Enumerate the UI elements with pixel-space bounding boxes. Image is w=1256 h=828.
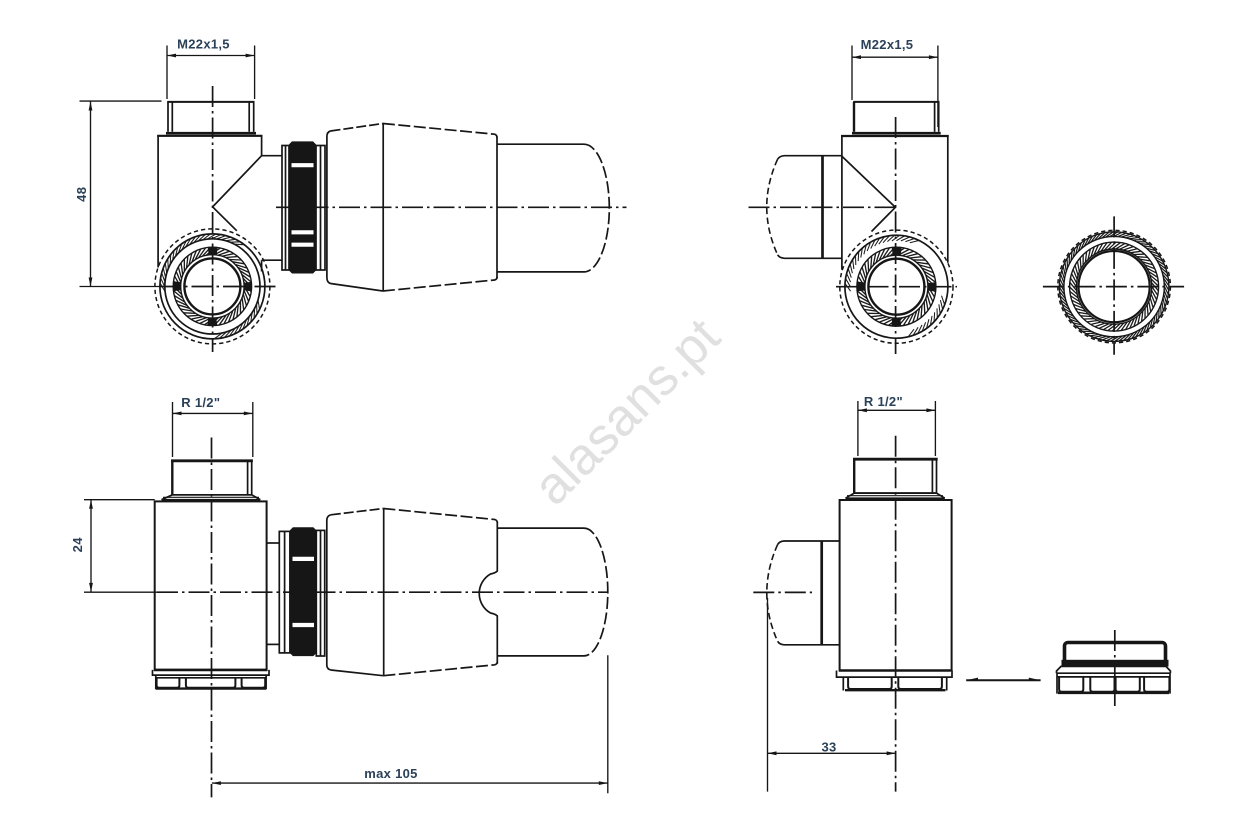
svg-text:max 105: max 105 <box>364 766 417 781</box>
svg-text:R 1/2": R 1/2" <box>181 395 220 410</box>
svg-text:R 1/2": R 1/2" <box>864 394 903 409</box>
svg-text:24: 24 <box>70 537 85 553</box>
svg-text:33: 33 <box>821 740 836 755</box>
svg-text:M22x1,5: M22x1,5 <box>177 37 230 52</box>
svg-text:M22x1,5: M22x1,5 <box>861 37 914 52</box>
svg-text:48: 48 <box>74 187 89 202</box>
